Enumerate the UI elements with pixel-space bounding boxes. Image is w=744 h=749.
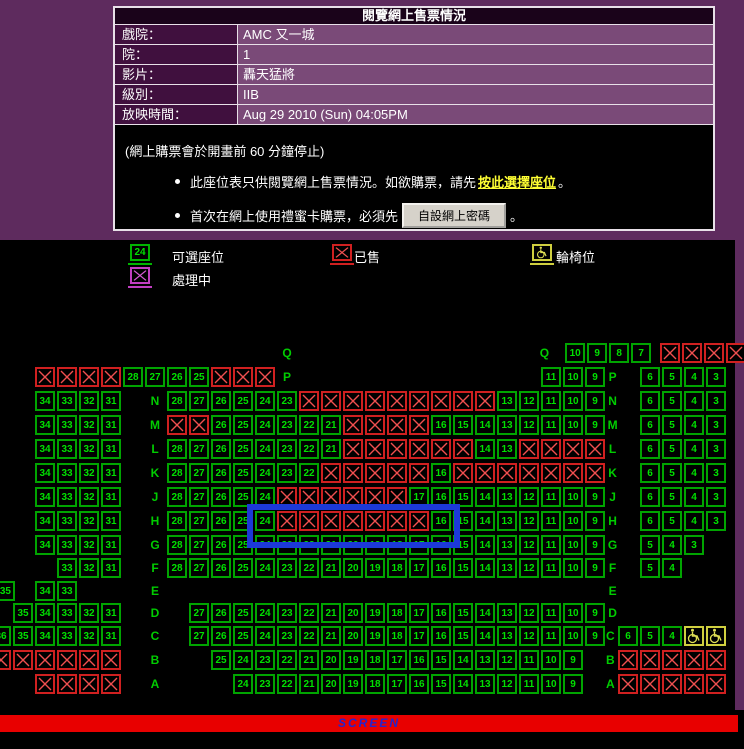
seat-sold <box>79 650 99 670</box>
seat-available: 11 <box>541 415 561 435</box>
seat-available: 23 <box>255 650 275 670</box>
seat-sold <box>387 439 407 459</box>
row-label-F-5: F <box>145 558 165 578</box>
seat-available: 23 <box>277 626 297 646</box>
seat-available: 13 <box>497 511 517 531</box>
seat-available: 26 <box>211 558 231 578</box>
seat-available: 10 <box>563 487 583 507</box>
seat-available: 33 <box>57 603 77 623</box>
seat-available: 28 <box>167 558 187 578</box>
seat-available: 28 <box>167 487 187 507</box>
seat-available: 18 <box>387 558 407 578</box>
row-label-M-5: M <box>145 415 165 435</box>
seat-available: 28 <box>123 367 143 387</box>
row-label-E-26: E <box>603 581 623 601</box>
seat-available: 32 <box>79 511 99 531</box>
seat-available: 32 <box>79 463 99 483</box>
seat-available: 16 <box>431 511 451 531</box>
seat-available: 21 <box>321 626 341 646</box>
seat-available: 13 <box>475 650 495 670</box>
seat-sold <box>365 439 385 459</box>
seat-available: 17 <box>409 603 429 623</box>
seat-available: 21 <box>321 415 341 435</box>
seat-available: 28 <box>167 391 187 411</box>
seat-available: 35 <box>13 626 33 646</box>
screen-bar: SCREEN <box>0 715 738 732</box>
seat-sold <box>321 391 341 411</box>
seat-available: 3 <box>706 415 726 435</box>
seat-available: 15 <box>453 511 473 531</box>
seat-available: 24 <box>255 626 275 646</box>
seat-sold <box>35 674 55 694</box>
row-label-K-26: K <box>603 463 623 483</box>
row-label-H-26: H <box>603 511 623 531</box>
seat-available: 21 <box>321 603 341 623</box>
seat-sold <box>365 511 385 531</box>
seat-sold <box>365 391 385 411</box>
seat-available: 7 <box>631 343 651 363</box>
seat-available: 19 <box>343 674 363 694</box>
seat-available: 28 <box>167 511 187 531</box>
seat-available: 27 <box>189 487 209 507</box>
seat-available: 17 <box>387 650 407 670</box>
seat-sold <box>57 367 77 387</box>
seat-available: 34 <box>35 487 55 507</box>
seat-available: 3 <box>706 511 726 531</box>
seat-available: 4 <box>684 511 704 531</box>
seat-sold <box>35 367 55 387</box>
seat-available: 32 <box>79 415 99 435</box>
seat-sold <box>255 367 275 387</box>
row-label-D-5: D <box>145 603 165 623</box>
seat-available: 21 <box>321 558 341 578</box>
seat-sold <box>343 415 363 435</box>
seat-available: 31 <box>101 463 121 483</box>
seat-available: 12 <box>497 650 517 670</box>
seat-available: 23 <box>277 535 297 555</box>
seat-available: 21 <box>321 439 341 459</box>
seat-available: 34 <box>35 511 55 531</box>
seat-available: 22 <box>299 415 319 435</box>
seat-sold <box>519 463 539 483</box>
row-label-J-26: J <box>603 487 623 507</box>
seat-available: 26 <box>211 391 231 411</box>
seat-available: 31 <box>101 558 121 578</box>
seat-available: 31 <box>101 415 121 435</box>
seat-available: 34 <box>35 439 55 459</box>
seat-available: 34 <box>35 415 55 435</box>
row-label-G-5: G <box>145 535 165 555</box>
seat-available: 11 <box>541 367 561 387</box>
seat-available: 26 <box>211 535 231 555</box>
seat-sold <box>453 391 473 411</box>
seat-available: 12 <box>519 535 539 555</box>
seat-available: 33 <box>57 439 77 459</box>
seat-available: 22 <box>299 463 319 483</box>
seat-available: 33 <box>57 558 77 578</box>
seat-sold <box>277 487 297 507</box>
seat-available: 12 <box>519 603 539 623</box>
seat-available: 26 <box>211 415 231 435</box>
seat-available: 24 <box>255 415 275 435</box>
seat-available: 31 <box>101 391 121 411</box>
seat-available: 3 <box>706 487 726 507</box>
seat-available: 24 <box>255 558 275 578</box>
seat-available: 27 <box>189 391 209 411</box>
seat-available: 11 <box>541 511 561 531</box>
seat-sold <box>409 439 429 459</box>
seat-available: 20 <box>343 603 363 623</box>
seat-sold <box>13 650 33 670</box>
seat-available: 26 <box>211 463 231 483</box>
seat-available: 11 <box>541 391 561 411</box>
seat-available: 24 <box>255 603 275 623</box>
seat-sold <box>640 674 660 694</box>
seat-available: 13 <box>497 391 517 411</box>
seat-available: 5 <box>662 439 682 459</box>
seat-available: 31 <box>101 487 121 507</box>
seat-available: 14 <box>475 626 495 646</box>
seat-available: 25 <box>233 511 253 531</box>
seat-available: 6 <box>640 439 660 459</box>
seat-available: 14 <box>453 674 473 694</box>
seat-available: 24 <box>255 511 275 531</box>
seat-available: 32 <box>79 487 99 507</box>
seat-available: 12 <box>519 487 539 507</box>
seat-sold <box>343 511 363 531</box>
seat-available: 14 <box>475 439 495 459</box>
seat-available: 4 <box>684 415 704 435</box>
row-label-L-5: L <box>145 439 165 459</box>
seat-available: 20 <box>343 535 363 555</box>
seat-sold <box>541 439 561 459</box>
row-label-F-26: F <box>603 558 623 578</box>
seat-sold <box>101 674 121 694</box>
seat-available: 23 <box>277 415 297 435</box>
seat-available: 22 <box>299 626 319 646</box>
seat-available: 34 <box>35 581 55 601</box>
seat-available: 31 <box>101 439 121 459</box>
seat-available: 11 <box>541 626 561 646</box>
seat-available: 23 <box>277 558 297 578</box>
seat-available: 23 <box>255 674 275 694</box>
seat-available: 5 <box>640 558 660 578</box>
seat-sold <box>684 650 704 670</box>
seat-sold <box>233 367 253 387</box>
seat-available: 23 <box>277 463 297 483</box>
seat-available: 5 <box>662 487 682 507</box>
row-label-A-5: A <box>145 674 165 694</box>
row-label-H-5: H <box>145 511 165 531</box>
seat-available: 24 <box>233 674 253 694</box>
seat-available: 26 <box>211 487 231 507</box>
seat-sold <box>57 674 77 694</box>
seat-sold <box>409 415 429 435</box>
seat-available: 34 <box>35 603 55 623</box>
seat-available: 25 <box>233 439 253 459</box>
seat-available: 35 <box>0 581 15 601</box>
seat-sold <box>343 391 363 411</box>
seat-sold <box>35 650 55 670</box>
seat-available: 22 <box>299 439 319 459</box>
seat-available: 22 <box>277 674 297 694</box>
seat-available: 31 <box>101 626 121 646</box>
row-label-M-26: M <box>603 415 623 435</box>
seat-available: 33 <box>57 626 77 646</box>
seat-available: 24 <box>255 391 275 411</box>
seat-sold <box>706 674 726 694</box>
seat-available: 16 <box>431 603 451 623</box>
seat-available: 28 <box>167 439 187 459</box>
seat-available: 13 <box>497 439 517 459</box>
seat-available: 16 <box>431 558 451 578</box>
seat-available: 4 <box>662 626 682 646</box>
seat-available: 16 <box>431 626 451 646</box>
seat-sold <box>57 650 77 670</box>
seat-available: 21 <box>299 674 319 694</box>
seat-sold <box>365 487 385 507</box>
seat-available: 17 <box>387 674 407 694</box>
seat-available: 11 <box>541 603 561 623</box>
row-label-L-26: L <box>603 439 623 459</box>
seat-sold <box>343 439 363 459</box>
seat-available: 18 <box>365 674 385 694</box>
seat-available: 16 <box>431 463 451 483</box>
seat-available: 5 <box>662 463 682 483</box>
seat-sold <box>660 343 680 363</box>
seat-available: 34 <box>35 463 55 483</box>
seat-sold <box>299 391 319 411</box>
seat-sold <box>563 439 583 459</box>
seat-available: 19 <box>365 558 385 578</box>
seat-sold <box>387 511 407 531</box>
seat-available: 15 <box>431 650 451 670</box>
seat-available: 6 <box>640 391 660 411</box>
seat-sold <box>409 463 429 483</box>
seat-available: 19 <box>365 626 385 646</box>
seat-sold <box>79 367 99 387</box>
seat-available: 17 <box>409 558 429 578</box>
seat-available: 10 <box>563 535 583 555</box>
seat-available: 16 <box>431 415 451 435</box>
seat-available: 13 <box>497 626 517 646</box>
seat-available: 23 <box>277 439 297 459</box>
seat-available: 21 <box>299 650 319 670</box>
seat-available: 26 <box>211 626 231 646</box>
seat-available: 10 <box>541 650 561 670</box>
seat-available: 11 <box>541 558 561 578</box>
seat-available: 34 <box>35 535 55 555</box>
seat-available: 18 <box>387 603 407 623</box>
seat-available: 15 <box>453 487 473 507</box>
seat-available: 19 <box>365 535 385 555</box>
seat-sold <box>640 650 660 670</box>
seat-available: 31 <box>101 603 121 623</box>
seat-available: 5 <box>662 415 682 435</box>
seat-available: 4 <box>684 487 704 507</box>
row-label-P-26: P <box>603 367 623 387</box>
seat-available: 3 <box>706 367 726 387</box>
seat-available: 34 <box>35 626 55 646</box>
seat-available: 6 <box>640 511 660 531</box>
seat-available: 33 <box>57 463 77 483</box>
seat-sold <box>563 463 583 483</box>
seat-available: 4 <box>684 391 704 411</box>
seat-available: 9 <box>563 674 583 694</box>
seat-available: 25 <box>211 650 231 670</box>
seat-sold <box>299 487 319 507</box>
seat-available: 18 <box>365 650 385 670</box>
seat-available: 14 <box>475 487 495 507</box>
seat-available: 26 <box>211 511 231 531</box>
seat-available: 25 <box>233 463 253 483</box>
row-label-G-26: G <box>603 535 623 555</box>
seat-available: 15 <box>453 558 473 578</box>
seat-sold <box>475 463 495 483</box>
seat-available: 26 <box>167 367 187 387</box>
seat-sold <box>321 463 341 483</box>
seat-available: 10 <box>565 343 585 363</box>
seat-available: 6 <box>640 463 660 483</box>
seat-available: 24 <box>255 463 275 483</box>
seat-available: 10 <box>563 603 583 623</box>
seat-available: 6 <box>618 626 638 646</box>
seat-available: 5 <box>640 626 660 646</box>
seat-sold <box>618 674 638 694</box>
seat-available: 15 <box>453 535 473 555</box>
seat-sold <box>475 391 495 411</box>
seat-available: 15 <box>453 603 473 623</box>
seat-available: 33 <box>57 487 77 507</box>
seat-sold <box>321 511 341 531</box>
seat-available: 22 <box>299 558 319 578</box>
seat-available: 6 <box>640 415 660 435</box>
seat-sold <box>79 674 99 694</box>
seat-available: 12 <box>519 415 539 435</box>
seat-available: 10 <box>563 391 583 411</box>
seat-sold <box>365 415 385 435</box>
seat-available: 17 <box>409 535 429 555</box>
seat-available: 24 <box>255 487 275 507</box>
seat-available: 4 <box>684 367 704 387</box>
seat-available: 4 <box>662 535 682 555</box>
row-label-Q-11: Q <box>277 343 297 363</box>
seat-available: 3 <box>706 391 726 411</box>
seat-sold <box>101 650 121 670</box>
seat-sold <box>726 343 744 363</box>
seat-available: 14 <box>475 535 495 555</box>
seat-available: 27 <box>189 535 209 555</box>
seat-available: 5 <box>662 511 682 531</box>
seat-available: 24 <box>233 650 253 670</box>
seat-available: 27 <box>189 463 209 483</box>
seat-sold <box>519 439 539 459</box>
seat-available: 11 <box>519 650 539 670</box>
seat-available: 27 <box>189 626 209 646</box>
row-label-J-5: J <box>145 487 165 507</box>
seat-sold <box>409 391 429 411</box>
seat-available: 12 <box>519 391 539 411</box>
seat-available: 13 <box>475 674 495 694</box>
seat-available: 14 <box>475 511 495 531</box>
seat-available: 16 <box>409 674 429 694</box>
seat-sold <box>453 463 473 483</box>
seat-sold <box>0 650 11 670</box>
seat-available: 15 <box>453 626 473 646</box>
seat-available: 11 <box>541 535 561 555</box>
seat-available: 33 <box>57 511 77 531</box>
seat-available: 36 <box>0 626 11 646</box>
seat-sold <box>387 463 407 483</box>
seat-available: 11 <box>519 674 539 694</box>
seat-available: 32 <box>79 558 99 578</box>
seat-available: 19 <box>343 650 363 670</box>
seat-available: 13 <box>497 415 517 435</box>
seat-available: 24 <box>255 535 275 555</box>
seat-sold <box>387 391 407 411</box>
seat-available: 20 <box>321 674 341 694</box>
seat-available: 22 <box>299 535 319 555</box>
seat-available: 9 <box>587 343 607 363</box>
seat-sold <box>497 463 517 483</box>
seat-available: 27 <box>189 603 209 623</box>
seat-available: 10 <box>563 511 583 531</box>
seat-sold <box>662 674 682 694</box>
seat-sold <box>662 650 682 670</box>
seat-available: 14 <box>453 650 473 670</box>
seat-available: 4 <box>662 558 682 578</box>
seat-sold <box>618 650 638 670</box>
seat-available: 16 <box>431 535 451 555</box>
seat-sold <box>706 650 726 670</box>
seat-available: 14 <box>475 415 495 435</box>
seat-sold <box>189 415 209 435</box>
seat-available: 3 <box>684 535 704 555</box>
seat-available: 5 <box>662 391 682 411</box>
seat-available: 25 <box>233 391 253 411</box>
seat-available: 25 <box>233 487 253 507</box>
seat-sold <box>684 674 704 694</box>
seat-available: 13 <box>497 487 517 507</box>
seat-sold <box>431 439 451 459</box>
seat-available: 10 <box>563 558 583 578</box>
seat-available: 27 <box>189 511 209 531</box>
seat-available: 22 <box>299 603 319 623</box>
row-label-N-26: N <box>603 391 623 411</box>
seat-sold <box>167 415 187 435</box>
seat-available: 18 <box>387 535 407 555</box>
seat-available: 10 <box>563 415 583 435</box>
seat-available: 31 <box>101 535 121 555</box>
row-label-P-11: P <box>277 367 297 387</box>
seat-available: 33 <box>57 391 77 411</box>
seat-available: 33 <box>57 581 77 601</box>
seat-sold <box>387 487 407 507</box>
seat-available: 26 <box>211 603 231 623</box>
seat-sold <box>101 367 121 387</box>
seat-sold <box>387 415 407 435</box>
seat-available: 17 <box>409 626 429 646</box>
seat-available: 12 <box>519 558 539 578</box>
seat-available: 28 <box>167 463 187 483</box>
seat-available: 32 <box>79 535 99 555</box>
seat-sold <box>365 463 385 483</box>
row-label-B-5: B <box>145 650 165 670</box>
seat-available: 11 <box>541 487 561 507</box>
seat-available: 32 <box>79 439 99 459</box>
row-label-E-5: E <box>145 581 165 601</box>
seat-available: 4 <box>684 463 704 483</box>
